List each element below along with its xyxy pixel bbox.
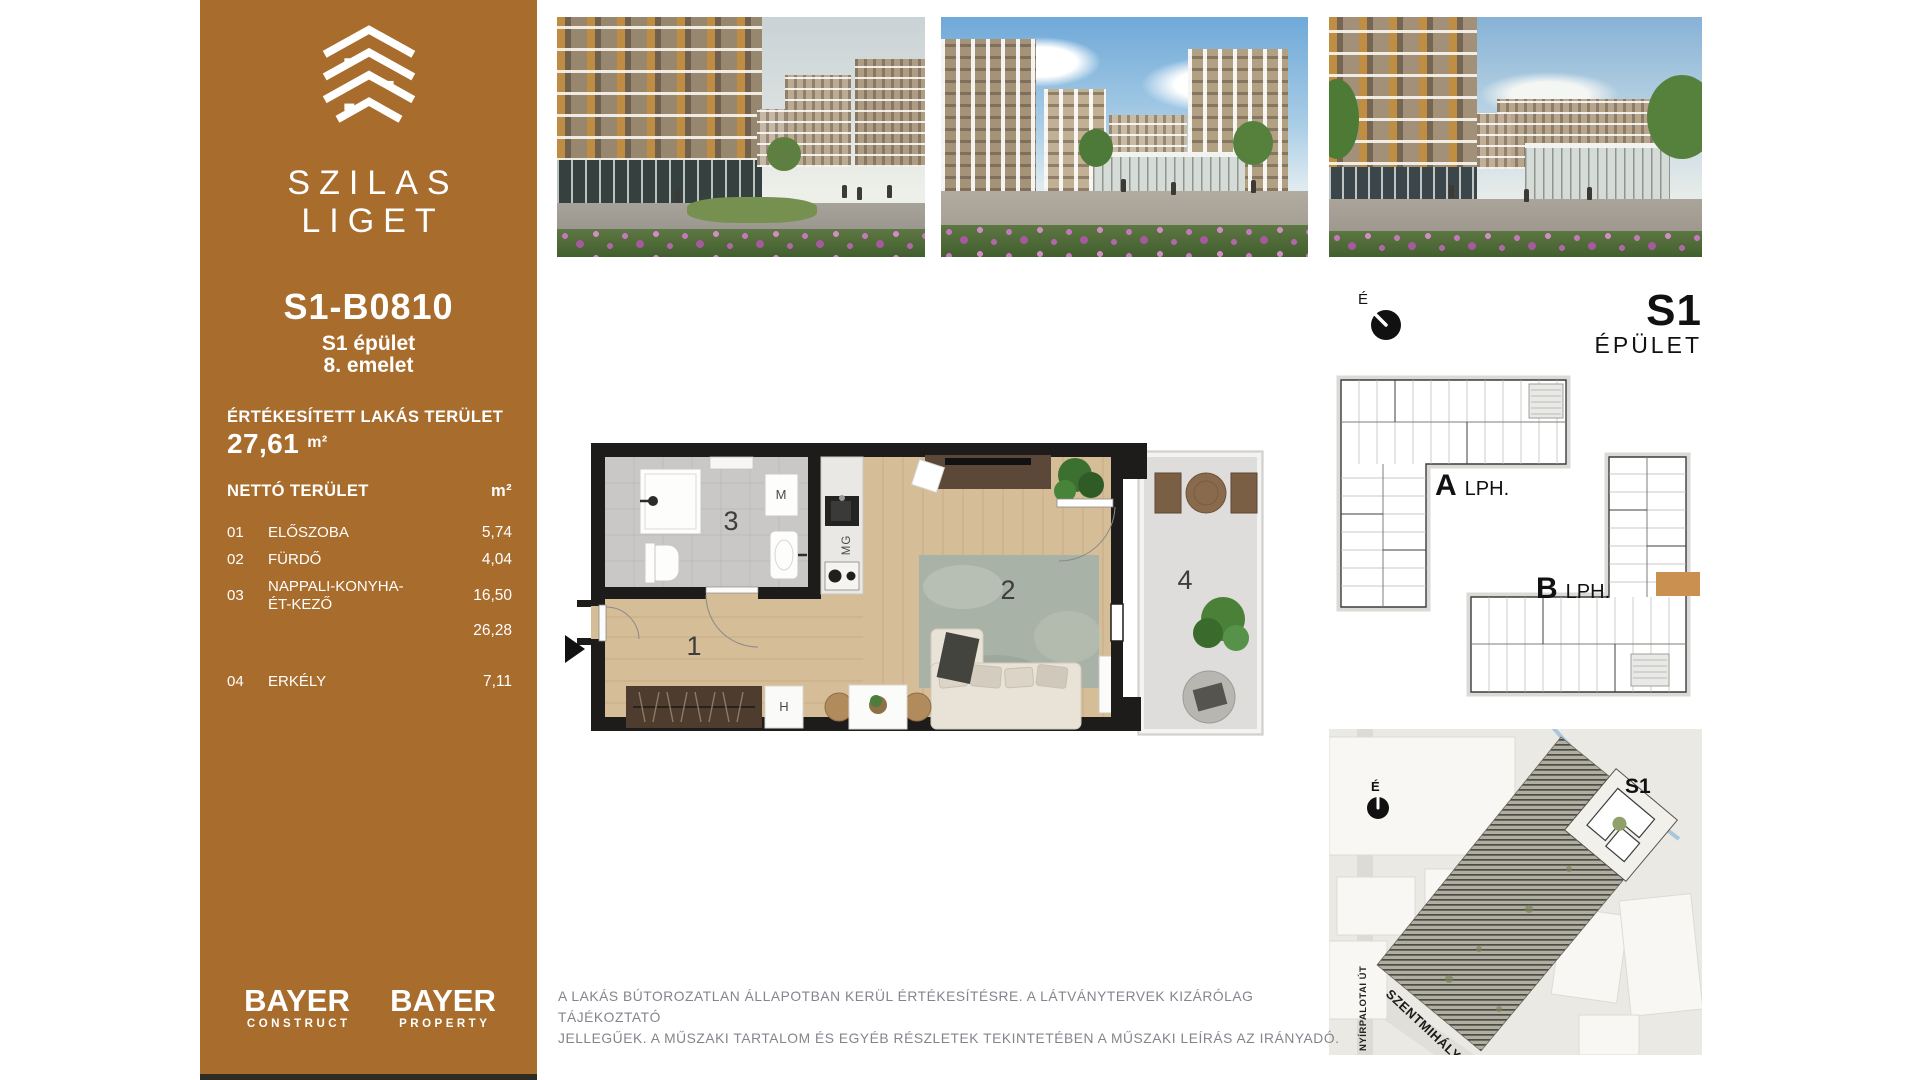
- wall-stub: [577, 638, 591, 645]
- sold-area-label: ÉRTÉKESÍTETT LAKÁS TERÜLET: [227, 408, 512, 427]
- stair-a-suffix: LPH.: [1465, 478, 1509, 500]
- room-row-subtotal: 26,28: [227, 622, 512, 642]
- bayer-property-subtitle: PROPERTY: [368, 1018, 518, 1030]
- window: [1111, 604, 1123, 641]
- room-label-living: 2: [1000, 575, 1015, 605]
- balcony-door-leaf: [1057, 499, 1113, 507]
- room-area: 7,11: [483, 673, 512, 691]
- balcony-chair: [1155, 473, 1181, 513]
- bayer-construct-title: BAYER: [222, 986, 372, 1016]
- room-name: NAPPALI-KONYHA-ÉT-KEZŐ: [268, 578, 426, 614]
- bayer-construct-logo: BAYER CONSTRUCT: [222, 986, 372, 1030]
- hall-wardrobe: [626, 686, 762, 728]
- cabinet-label: H: [779, 699, 788, 714]
- room-label-bathroom: 3: [723, 506, 738, 536]
- bath-door-leaf: [706, 587, 758, 593]
- building-title-epulet: ÉPÜLET: [1540, 332, 1702, 359]
- person-silhouette: [1449, 185, 1454, 198]
- disclaimer-line1: A LAKÁS BÚTOROZATLAN ÁLLAPOTBAN KERÜL ÉR…: [558, 986, 1348, 1028]
- render-photo-3: [1329, 17, 1702, 257]
- kitchen: [821, 457, 863, 594]
- balcony: [1123, 443, 1263, 735]
- bath-shelf: [710, 457, 753, 469]
- stair-b-suffix: LPH.: [1566, 581, 1610, 603]
- stairwell-a-label: ALPH.: [1435, 469, 1509, 502]
- highlighted-unit: [1656, 572, 1700, 596]
- room-area: 16,50: [473, 587, 512, 605]
- bayer-construct-subtitle: CONSTRUCT: [222, 1018, 372, 1030]
- person-silhouette: [1524, 189, 1529, 202]
- disclaimer-line2: JELLEGŰEK. A MŰSZAKI TARTALOM ÉS EGYÉB R…: [558, 1028, 1348, 1049]
- person-silhouette: [1251, 180, 1256, 193]
- brochure-page: SZILAS LIGET S1-B0810 S1 épület 8. emele…: [0, 0, 1920, 1080]
- wall-stub: [577, 600, 591, 607]
- szilas-liget-logo-icon: [305, 24, 433, 128]
- brand-line2: LIGET: [200, 202, 537, 241]
- room-row-erkely: 04 ERKÉLY 7,11: [227, 673, 512, 693]
- sold-area-number: 27,61: [227, 428, 299, 459]
- room-num: 02: [227, 551, 244, 568]
- flower-bed: [1329, 231, 1702, 257]
- unit-floor: 8. emelet: [200, 354, 537, 378]
- glass-pavilion: [1525, 143, 1670, 204]
- room-row-eloszoba: 01 ELŐSZOBA 5,74: [227, 524, 512, 544]
- street-name-vertical: NYÍRPALOTAI ÚT: [1357, 966, 1369, 1051]
- sold-area-value: 27,61 m²: [227, 428, 512, 460]
- tv: [945, 458, 1031, 465]
- sold-area-unit: m²: [307, 434, 327, 451]
- balcony-plant: [1223, 625, 1249, 651]
- brand-line1: SZILAS: [200, 164, 537, 203]
- sink: [770, 531, 798, 579]
- site-marker-s1: S1: [1625, 775, 1651, 798]
- map-compass-label: É: [1371, 779, 1380, 794]
- person-silhouette: [842, 185, 847, 198]
- room-area-subtotal: 26,28: [473, 622, 512, 640]
- building: [1477, 113, 1511, 169]
- tree: [1079, 129, 1113, 167]
- disclaimer: A LAKÁS BÚTOROZATLAN ÁLLAPOTBAN KERÜL ÉR…: [558, 986, 1348, 1049]
- building-compass: É: [1352, 288, 1412, 348]
- net-area-unit: m²: [491, 482, 512, 501]
- building-title: S1 ÉPÜLET: [1540, 292, 1702, 359]
- entry-door-leaf: [599, 605, 606, 641]
- person-silhouette: [1171, 182, 1176, 195]
- stair-a-letter: A: [1435, 469, 1457, 502]
- balcony-table: [1186, 473, 1226, 513]
- person-silhouette: [1587, 187, 1592, 200]
- tree: [1233, 121, 1273, 165]
- compass-north-label: É: [1358, 291, 1368, 308]
- bayer-property-logo: BAYER PROPERTY: [368, 986, 518, 1030]
- net-area-label: NETTÓ TERÜLET: [227, 482, 369, 500]
- person-silhouette: [675, 189, 680, 202]
- tree: [767, 137, 801, 171]
- net-area-header: NETTÓ TERÜLET m²: [227, 482, 512, 501]
- washing-machine-label: M: [776, 487, 787, 502]
- room-area: 5,74: [482, 524, 512, 542]
- room-name: ERKÉLY: [268, 673, 426, 691]
- person-silhouette: [857, 187, 862, 200]
- room-name: ELŐSZOBA: [268, 524, 426, 542]
- site-map: S1 É NYÍRPALOTAI ÚT SZENTMIHÁLYI ÚT: [1329, 729, 1702, 1055]
- person-silhouette: [1121, 179, 1126, 192]
- room-row-nappali: 03 NAPPALI-KONYHA-ÉT-KEZŐ 16,50: [227, 578, 512, 598]
- apartment-floor-plan: 1 2 3 4 M H MG: [563, 437, 1273, 737]
- building: [855, 59, 925, 167]
- tv-console: [912, 455, 1051, 492]
- sidebar: SZILAS LIGET S1-B0810 S1 épület 8. emele…: [200, 0, 537, 1080]
- unit-id: S1-B0810: [200, 286, 537, 328]
- flower-bed: [557, 229, 925, 257]
- building-title-s1: S1: [1540, 292, 1702, 330]
- unit-building: S1 épület: [200, 332, 537, 356]
- stair-b-letter: B: [1536, 572, 1558, 605]
- room-area: 4,04: [482, 551, 512, 569]
- person-silhouette: [887, 185, 892, 198]
- flower-bed: [941, 225, 1308, 257]
- room-label-hall: 1: [686, 631, 701, 661]
- lawn: [687, 197, 817, 223]
- stairwell-b-label: BLPH.: [1536, 572, 1610, 605]
- building: [941, 39, 1036, 191]
- room-num: 03: [227, 587, 244, 604]
- room-label-balcony: 4: [1177, 565, 1192, 595]
- render-photo-1: [557, 17, 925, 257]
- balcony-chair: [1231, 473, 1257, 513]
- room-name: FÜRDŐ: [268, 551, 426, 569]
- balcony-plant: [1193, 618, 1223, 648]
- dishwasher-label: MG: [841, 535, 853, 556]
- sidebar-bottom-bar: [200, 1074, 537, 1080]
- room-num: 01: [227, 524, 244, 541]
- kitchen-tap-icon: [839, 495, 845, 501]
- room-num: 04: [227, 673, 244, 690]
- room-row-furdo: 02 FÜRDŐ 4,04: [227, 551, 512, 571]
- render-photo-2: [941, 17, 1308, 257]
- radiator: [1099, 656, 1112, 713]
- building-key-plan: ALPH. BLPH.: [1331, 362, 1709, 698]
- bayer-property-title: BAYER: [368, 986, 518, 1016]
